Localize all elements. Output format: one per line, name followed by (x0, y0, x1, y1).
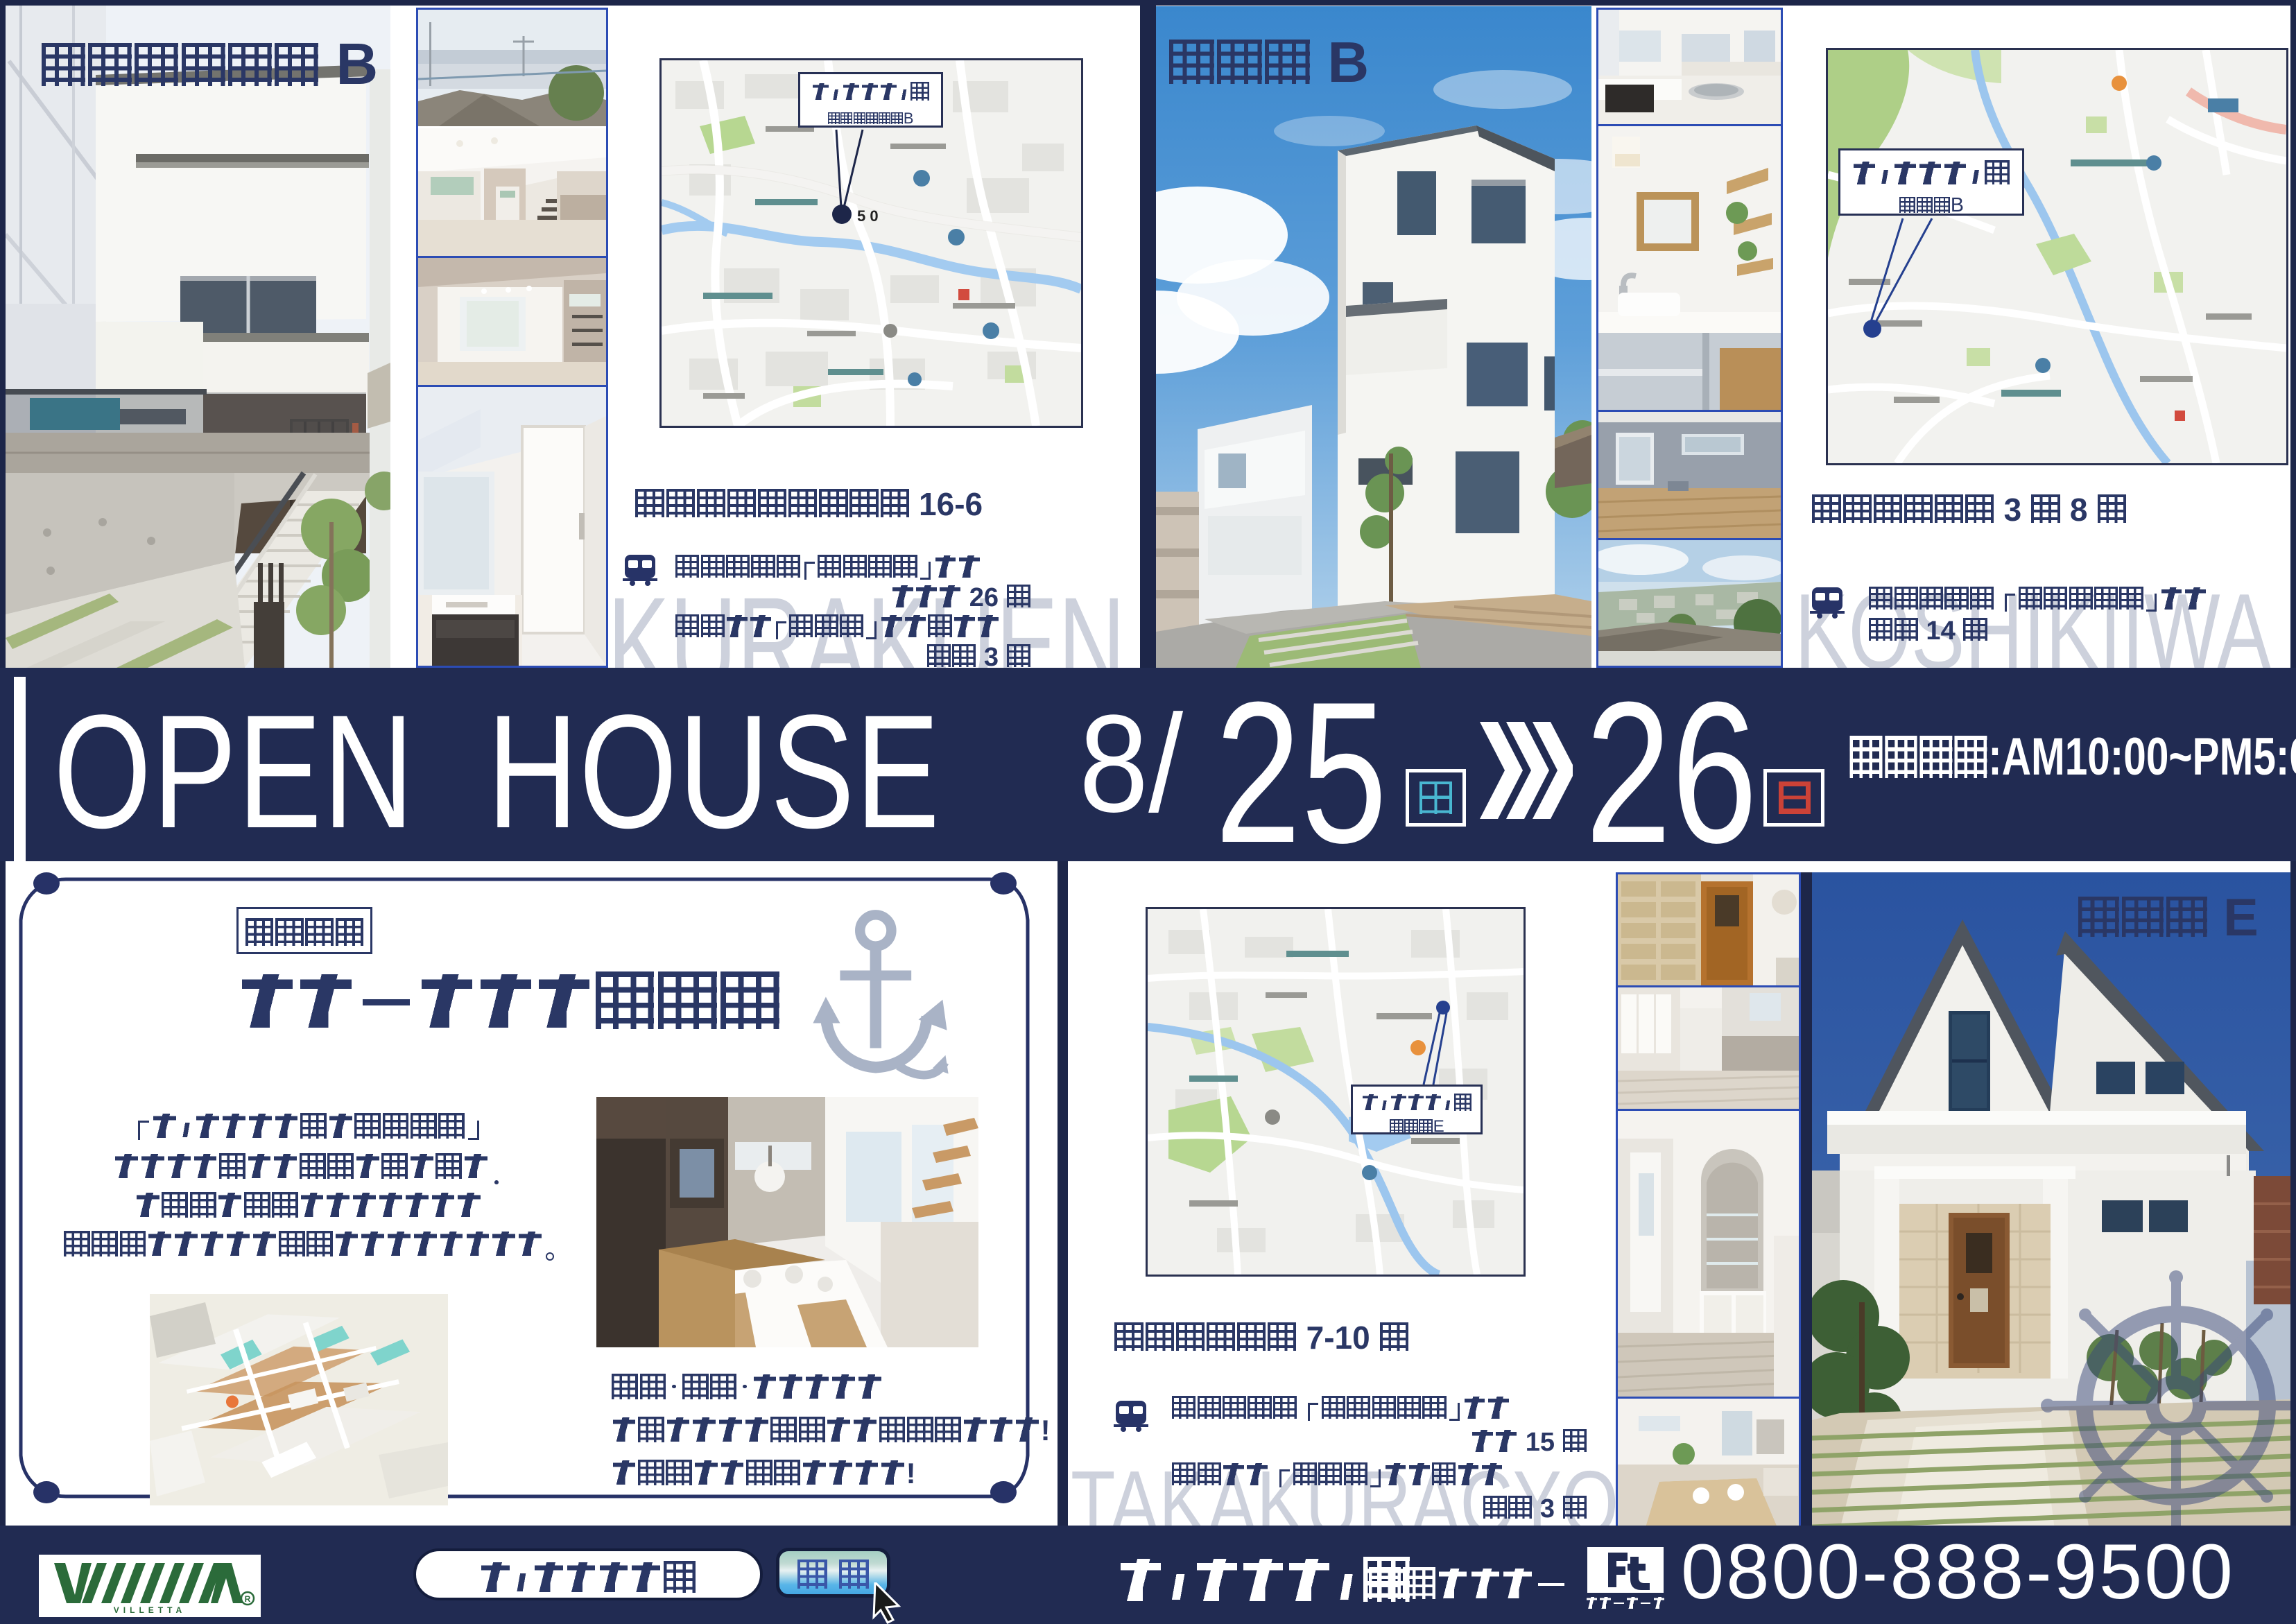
svg-text:VILLETTA: VILLETTA (114, 1605, 186, 1615)
svg-text:R: R (245, 1594, 251, 1604)
svg-text:5 0: 5 0 (857, 207, 879, 225)
